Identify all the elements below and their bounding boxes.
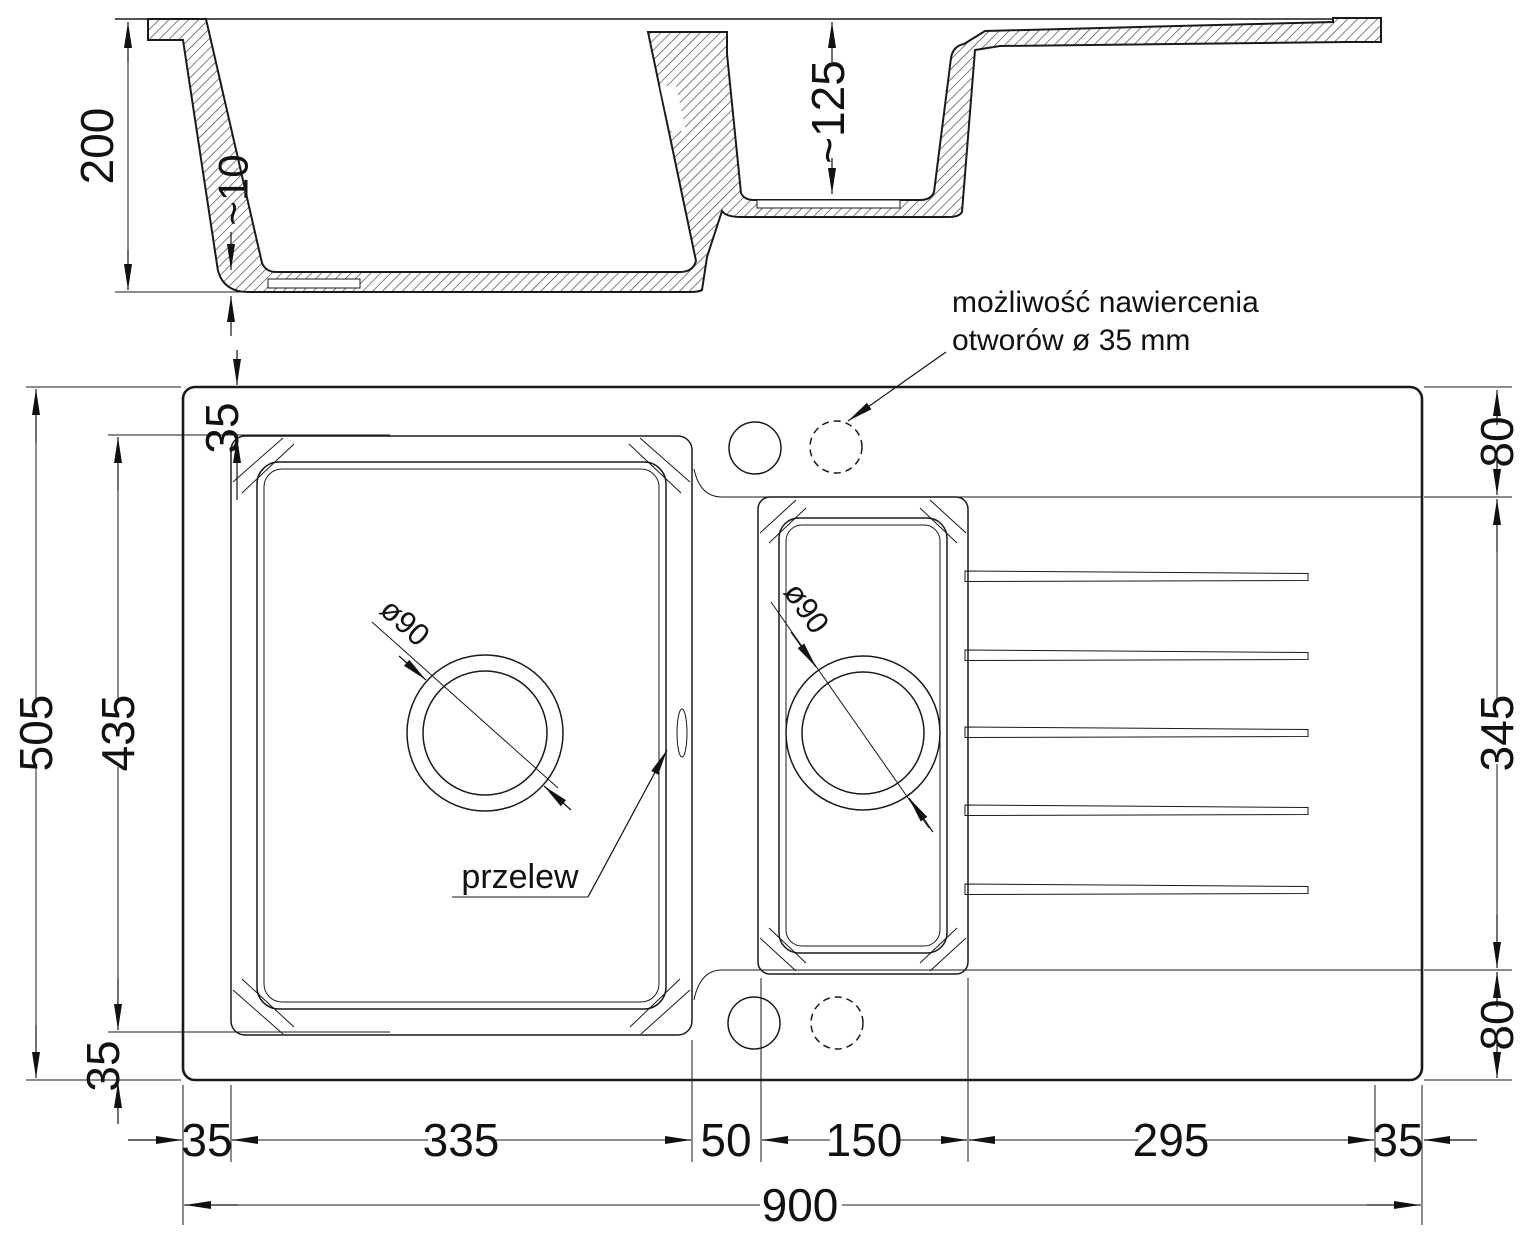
tap-hole-top — [729, 422, 781, 474]
corner-chamfer — [930, 500, 966, 533]
rib — [965, 805, 1308, 816]
small-bowl: ø90 — [758, 497, 968, 974]
tap-holes — [728, 421, 863, 1049]
dim-total-height: 505 — [10, 695, 62, 772]
dim-depth-200: 200 — [71, 108, 123, 185]
small-bowl-rim — [758, 497, 968, 974]
main-bowl: ø90 — [231, 436, 692, 1035]
dim-bowl-height: 435 — [92, 695, 144, 772]
dim-b2: 335 — [423, 1114, 500, 1166]
dim-right-bottom: 80 — [1471, 999, 1523, 1050]
rib — [965, 650, 1308, 661]
main-bowl-rim — [231, 436, 692, 1035]
corner-chamfer — [930, 938, 966, 971]
main-drain-flange — [407, 655, 563, 811]
main-bowl-inner — [257, 462, 666, 1009]
dia-arrow — [791, 632, 816, 667]
corner-chamfer — [630, 979, 680, 1027]
main-bowl-inner2 — [264, 469, 659, 1002]
technical-drawing-page: 200 ~10 ~125 możliwość nawiercenia otwor… — [0, 0, 1534, 1242]
dim-bottom-thickness: ~10 — [210, 154, 257, 225]
annotation-line2: otworów ø 35 mm — [952, 324, 1190, 357]
left-dimensions: 505 435 35 35 — [10, 350, 390, 1124]
dim-b3: 50 — [700, 1114, 751, 1166]
corner-chamfer — [242, 979, 294, 1027]
dim-small-depth: ~125 — [802, 60, 854, 164]
overflow-slot — [677, 709, 687, 757]
section-body — [148, 18, 1381, 292]
corner-chamfer — [760, 500, 796, 533]
dim-top-border: 35 — [196, 402, 248, 453]
rib — [965, 727, 1308, 738]
overflow-callout: przelew — [452, 750, 667, 897]
rib — [965, 571, 1308, 582]
overflow-label: przelew — [461, 858, 579, 896]
corner-chamfer — [641, 990, 690, 1034]
dim-total-width: 900 — [762, 1179, 839, 1231]
optional-hole-bottom — [811, 997, 863, 1049]
small-bottom-recess — [757, 200, 900, 208]
right-dimensions: 80 345 80 — [1424, 387, 1523, 1080]
main-drain-dia-line — [372, 622, 558, 788]
dim-right-top: 80 — [1471, 416, 1523, 467]
annotation-line1: możliwość nawiercenia — [952, 286, 1259, 319]
tap-hole-bottom — [728, 997, 780, 1049]
bottom-dimensions: 35 335 50 150 295 35 900 — [128, 978, 1477, 1231]
dim-bottom-border: 35 — [77, 1040, 129, 1091]
dim-right-middle: 345 — [1471, 695, 1523, 772]
small-drain-dia-line — [771, 602, 929, 828]
dim-b1: 35 — [181, 1114, 232, 1166]
dim-b5: 295 — [1133, 1114, 1210, 1166]
plan-view: ø90 przelew ø90 — [183, 387, 1422, 1080]
dia-arrow — [399, 656, 426, 680]
corner-chamfer — [760, 938, 796, 971]
main-bottom-recess — [268, 279, 360, 288]
main-drain-label: ø90 — [373, 591, 436, 653]
optional-hole-top — [810, 421, 862, 473]
drill-hole-annotation: możliwość nawiercenia otworów ø 35 mm — [848, 286, 1259, 421]
dim-b4: 150 — [826, 1114, 903, 1166]
rib — [965, 884, 1308, 895]
dim-b6: 35 — [1372, 1114, 1423, 1166]
deck-step-top — [694, 469, 1421, 497]
sink-technical-drawing: 200 ~10 ~125 możliwość nawiercenia otwor… — [0, 0, 1534, 1242]
dia-arrow — [544, 786, 571, 810]
main-drain-hole — [423, 671, 547, 795]
corner-chamfer — [233, 990, 283, 1034]
overflow-leader — [588, 750, 667, 897]
dia-arrow — [909, 798, 933, 832]
drainboard-ribs — [965, 571, 1308, 895]
